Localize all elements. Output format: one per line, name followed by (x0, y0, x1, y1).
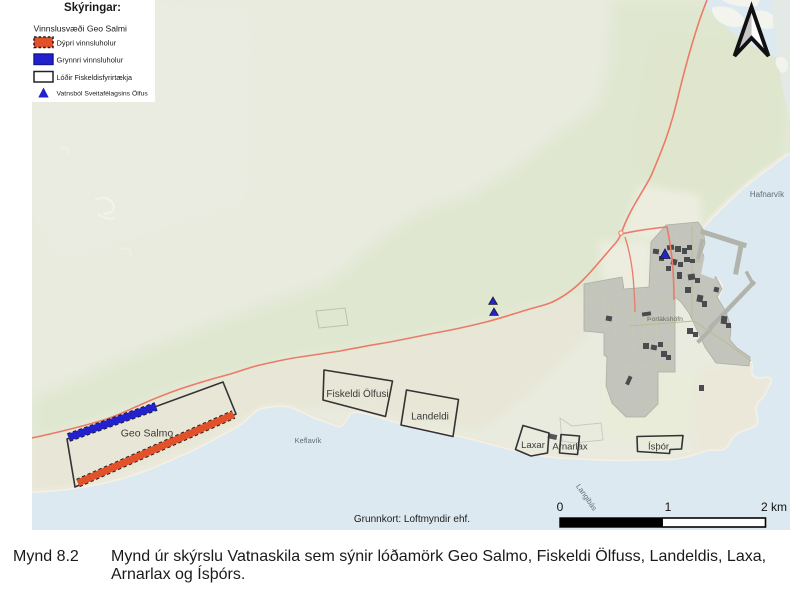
svg-text:Fiskeldi Ölfusi: Fiskeldi Ölfusi (326, 388, 388, 400)
svg-text:Landeldi: Landeldi (411, 412, 449, 423)
svg-text:Hafnarvík: Hafnarvík (750, 190, 785, 199)
svg-text:Mynd 8.2: Mynd 8.2 (13, 548, 79, 565)
svg-text:Vatnsból Sveitafélagsins Ölfus: Vatnsból Sveitafélagsins Ölfus (57, 90, 149, 98)
svg-text:2 km: 2 km (761, 500, 787, 514)
svg-text:Arnarlax og Ísþórs.: Arnarlax og Ísþórs. (111, 564, 245, 583)
svg-text:Skýringar:: Skýringar: (64, 2, 121, 14)
svg-text:Keflavík: Keflavík (295, 436, 322, 445)
svg-text:Mynd úr skýrslu Vatnaskila sem: Mynd úr skýrslu Vatnaskila sem sýnir lóð… (111, 547, 766, 565)
svg-text:0: 0 (557, 500, 564, 514)
svg-text:Vinnslusvæði Geo Salmi: Vinnslusvæði Geo Salmi (34, 24, 128, 34)
svg-text:Grynnri vinnsluholur: Grynnri vinnsluholur (57, 56, 124, 65)
svg-text:Lóðir Fiskeldisfyrirtækja: Lóðir Fiskeldisfyrirtækja (57, 73, 133, 82)
svg-text:Ísþór: Ísþór (648, 442, 669, 453)
svg-text:Grunnkort: Loftmyndir ehf.: Grunnkort: Loftmyndir ehf. (354, 514, 470, 525)
svg-text:Þorlákshöfn: Þorlákshöfn (647, 316, 683, 323)
svg-text:Geo Salmo: Geo Salmo (121, 428, 174, 440)
svg-text:Dýpri vinnsluholur: Dýpri vinnsluholur (57, 39, 117, 48)
svg-text:Laxar: Laxar (521, 440, 545, 451)
svg-text:Arnarlax: Arnarlax (552, 442, 588, 453)
svg-text:1: 1 (665, 500, 672, 514)
